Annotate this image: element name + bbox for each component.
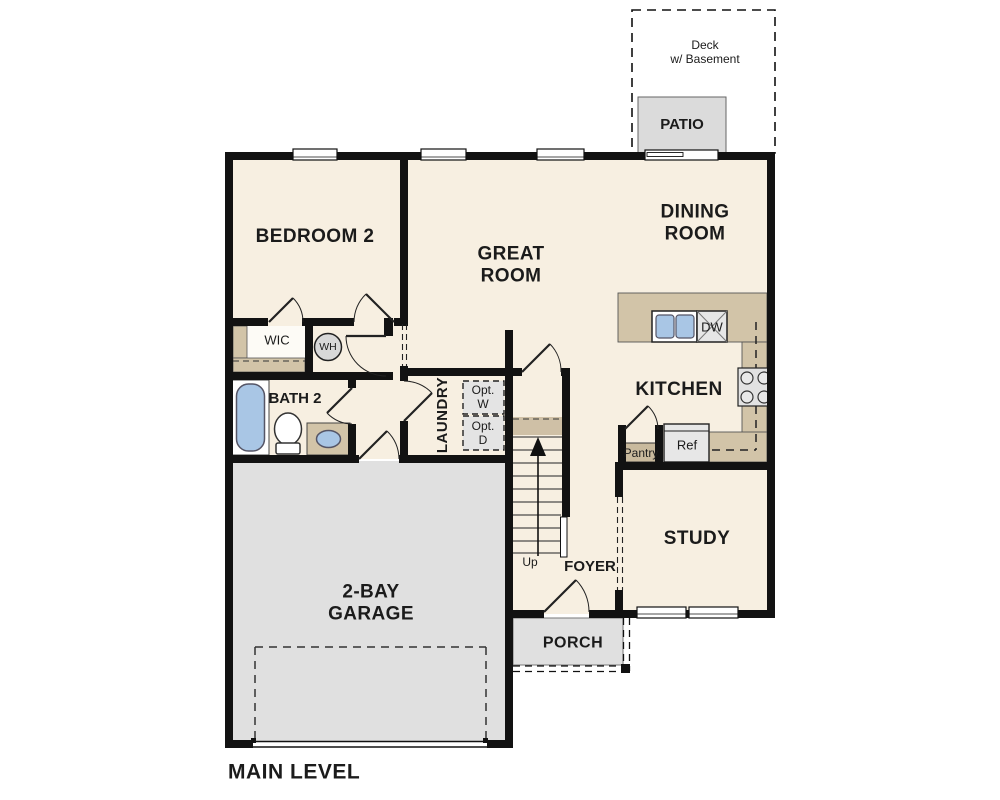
patio-label: PATIO — [660, 116, 704, 134]
opt-dryer-label: Opt. D — [472, 419, 495, 447]
kitchen-label: KITCHEN — [635, 379, 722, 401]
window — [689, 607, 738, 618]
wic-shelf — [233, 326, 247, 358]
kitchen-sink-icon — [652, 311, 697, 342]
garage-door-opening — [253, 742, 487, 748]
floor-plan-drawing — [0, 0, 1000, 800]
porch-label: PORCH — [543, 635, 603, 654]
deck-label: Deck w/ Basement — [670, 38, 739, 66]
water-heater-label: WH — [319, 341, 337, 353]
window — [637, 607, 686, 618]
vanity-sink-icon — [307, 423, 350, 455]
refrigerator-label: Ref — [677, 437, 697, 452]
stair-landing — [513, 417, 562, 435]
study-label: STUDY — [664, 528, 730, 550]
page-title: MAIN LEVEL — [228, 761, 360, 786]
bedroom2-label: BEDROOM 2 — [256, 226, 375, 248]
window — [537, 149, 584, 160]
foyer-label: FOYER — [564, 558, 616, 576]
floor-plan-canvas: Deck w/ Basement PATIO DINING ROOM GREAT… — [0, 0, 1000, 800]
pantry-label: Pantry — [624, 446, 659, 460]
stairs-up-label: Up — [522, 555, 537, 569]
bath2-label: BATH 2 — [268, 390, 321, 408]
garage-label: 2-BAY GARAGE — [328, 582, 414, 627]
wic-shelf-bottom — [233, 358, 305, 372]
dining-room-label: DINING ROOM — [661, 202, 730, 247]
laundry-label: LAUNDRY — [434, 377, 452, 453]
opt-washer-label: Opt. W — [472, 383, 495, 411]
toilet-icon — [275, 413, 302, 454]
sliding-patio-door — [645, 150, 718, 160]
dishwasher-label: DW — [701, 319, 723, 334]
stair-railing — [561, 517, 568, 557]
porch-post — [621, 664, 630, 673]
bathtub-icon — [237, 384, 265, 451]
window — [293, 149, 337, 160]
range-icon — [738, 368, 772, 406]
wic-label: WIC — [264, 332, 289, 347]
great-room-label: GREAT ROOM — [477, 244, 544, 289]
window — [421, 149, 466, 160]
